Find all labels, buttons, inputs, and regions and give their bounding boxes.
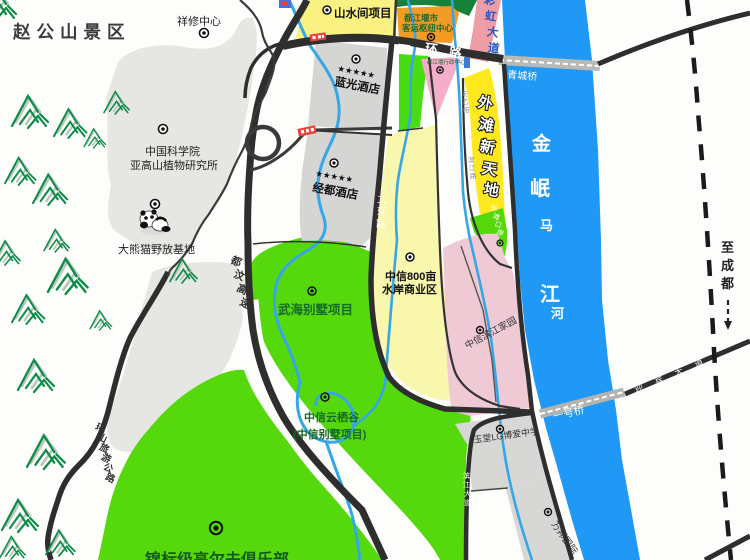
svg-text:都江堰市: 都江堰市 [403,13,439,23]
svg-text:一: 一 [397,38,412,54]
svg-text:马: 马 [540,218,553,233]
svg-text:地: 地 [482,180,500,200]
svg-text:街: 街 [463,105,470,114]
svg-text:大: 大 [464,489,471,498]
svg-text:山水间项目: 山水间项目 [334,6,392,20]
svg-text:外: 外 [475,93,494,114]
svg-text:金: 金 [531,132,552,155]
svg-text:路: 路 [470,171,477,180]
svg-text:大熊猫野放基地: 大熊猫野放基地 [118,242,195,256]
svg-text:岷: 岷 [530,177,550,200]
svg-text:新: 新 [478,137,496,157]
svg-text:河: 河 [551,306,564,321]
svg-text:武海别墅项目: 武海别墅项目 [278,302,353,317]
svg-text:环: 环 [424,41,439,57]
svg-text:滩: 滩 [477,115,495,135]
svg-text:江: 江 [540,283,560,306]
svg-text:滨: 滨 [468,155,475,164]
svg-text:江: 江 [463,481,470,489]
svg-text:二环路: 二环路 [376,195,387,230]
svg-text:(中信别墅项目): (中信别墅项目) [293,427,367,441]
svg-text:客运枢纽中心: 客运枢纽中心 [401,23,454,33]
svg-text:祥修中心: 祥修中心 [177,14,221,28]
svg-text:水岸商业区: 水岸商业区 [382,282,437,296]
svg-text:中国科学院: 中国科学院 [145,144,200,158]
svg-text:天: 天 [461,90,468,98]
svg-text:道: 道 [464,498,471,507]
svg-text:中信云栖谷: 中信云栖谷 [304,410,360,424]
svg-text:赵公山景区: 赵公山景区 [12,22,131,42]
svg-text:滨: 滨 [463,471,470,480]
svg-text:锦标级高尔夫俱乐部: 锦标级高尔夫俱乐部 [145,550,289,560]
svg-text:中信800亩: 中信800亩 [385,269,436,283]
svg-text:江: 江 [469,164,476,172]
svg-text:亚高山植物研究所: 亚高山植物研究所 [130,158,218,172]
svg-text:都江堰行政中心: 都江堰行政中心 [427,58,466,66]
svg-text:路: 路 [448,44,463,61]
svg-text:至成都: 至成都 [720,240,734,291]
svg-text:乙: 乙 [462,98,469,106]
